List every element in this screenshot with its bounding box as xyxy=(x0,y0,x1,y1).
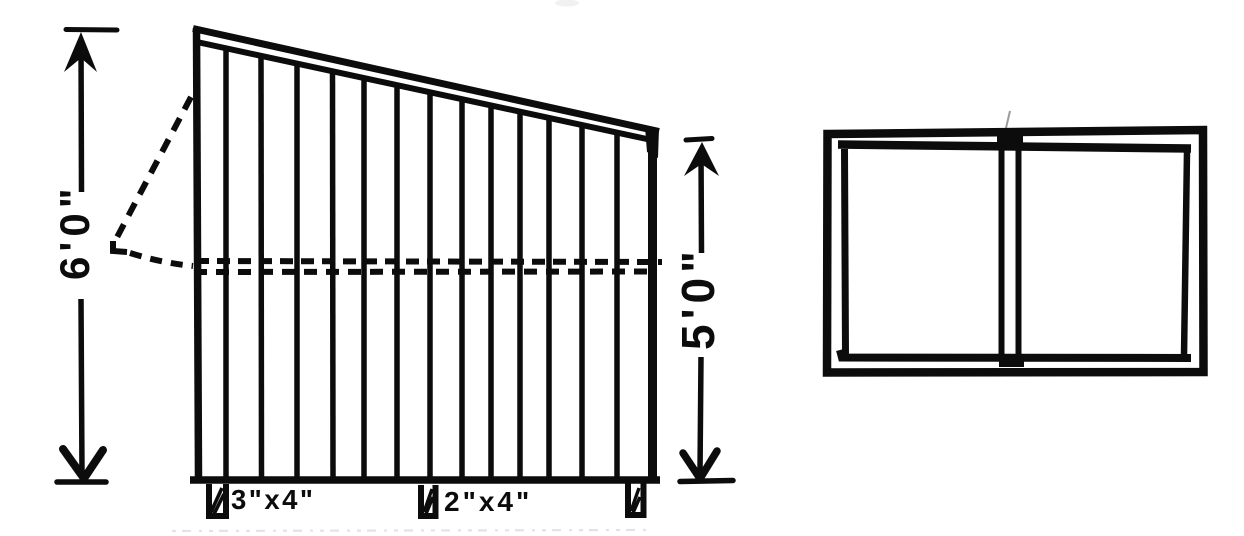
svg-text:5'0": 5'0" xyxy=(672,246,724,350)
svg-text:6'0": 6'0" xyxy=(51,183,98,280)
svg-text:2"x4": 2"x4" xyxy=(444,486,532,517)
svg-text:3"x4": 3"x4" xyxy=(231,484,315,515)
